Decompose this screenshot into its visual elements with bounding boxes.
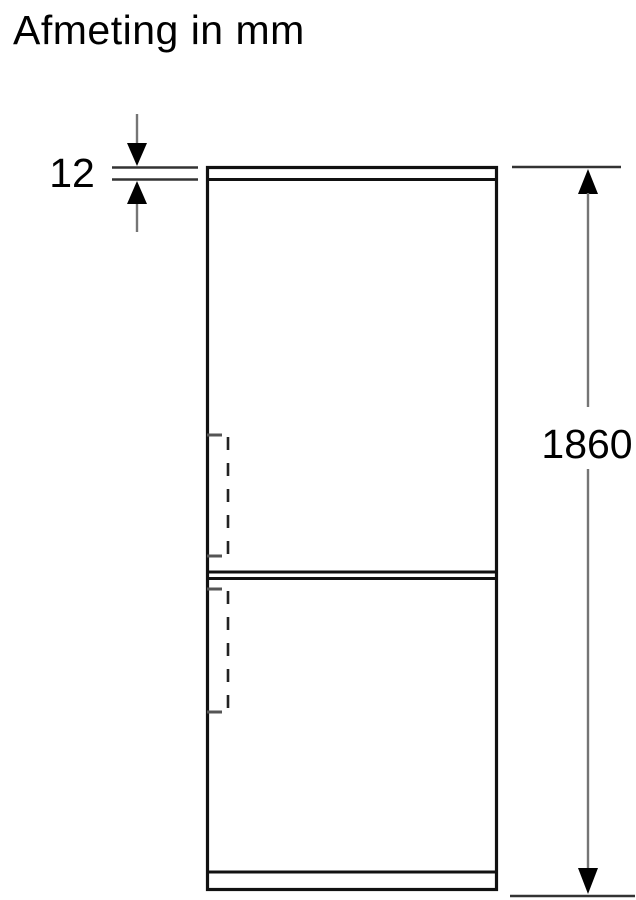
dim1860-label: 1860 bbox=[541, 421, 632, 467]
dimension-drawing-page: Afmeting in mm 12 bbox=[0, 0, 636, 900]
arrow-down-icon bbox=[127, 143, 147, 166]
fridge-body-outline bbox=[208, 168, 497, 890]
arrow-down-icon bbox=[578, 868, 598, 894]
refrigerator-outline bbox=[206, 168, 498, 890]
dim12-label: 12 bbox=[49, 150, 95, 196]
diagram-title: Afmeting in mm bbox=[13, 7, 305, 53]
arrow-up-icon bbox=[578, 169, 598, 194]
refrigerator-dimension-diagram: Afmeting in mm 12 bbox=[0, 0, 636, 900]
arrow-up-icon bbox=[127, 181, 147, 204]
dimension-top-panel: 12 bbox=[49, 114, 198, 232]
dimension-overall-height: 1860 bbox=[510, 167, 635, 896]
